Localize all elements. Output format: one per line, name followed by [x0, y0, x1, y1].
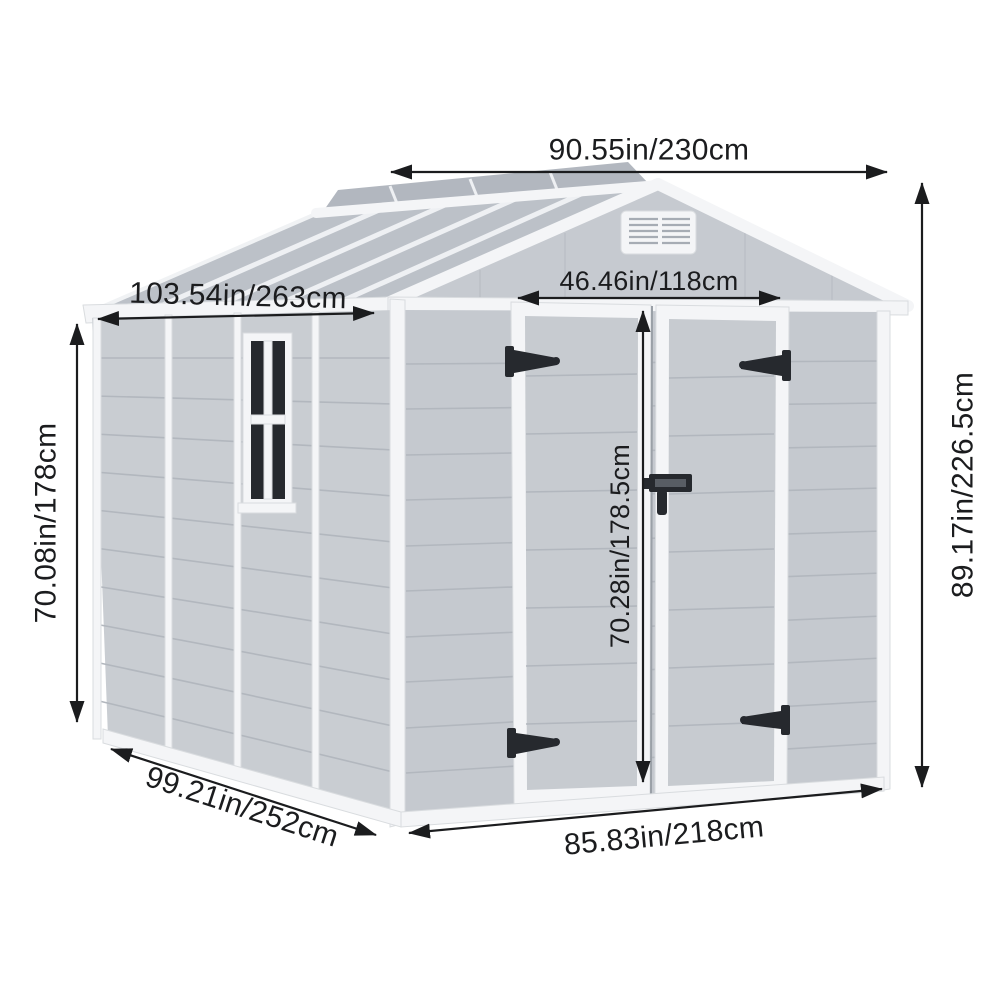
dim-label-overall-height: 89.17in/226.5cm — [947, 372, 980, 598]
dimension-wall-height: 70.08in/178cm — [30, 324, 78, 722]
gable-vent-icon — [621, 211, 696, 254]
window-sill — [238, 503, 296, 513]
side-window — [238, 333, 296, 513]
dim-label-roof-width: 90.55in/230cm — [549, 134, 750, 167]
dim-label-wall-height: 70.08in/178cm — [30, 423, 63, 624]
dimension-roof-width: 90.55in/230cm — [391, 134, 887, 173]
front-wall — [404, 302, 886, 820]
dim-label-door-height: 70.28in/178.5cm — [605, 444, 635, 648]
front-left-corner-post — [390, 299, 405, 827]
dim-label-roof-slope-depth: 103.54in/263cm — [129, 277, 347, 316]
window-mullion-horizontal — [251, 415, 285, 424]
door-center-seam — [651, 306, 652, 798]
front-right-corner-post — [877, 311, 890, 791]
shed-illustration: 90.55in/230cm 103.54in/263cm 46.46in/118… — [0, 0, 1000, 1000]
dimension-overall-height: 89.17in/226.5cm — [922, 183, 980, 787]
dim-label-base-width: 85.83in/218cm — [563, 810, 766, 861]
dim-label-door-width: 46.46in/118cm — [559, 266, 738, 296]
shed-dimension-diagram: 90.55in/230cm 103.54in/263cm 46.46in/118… — [0, 0, 1000, 1000]
